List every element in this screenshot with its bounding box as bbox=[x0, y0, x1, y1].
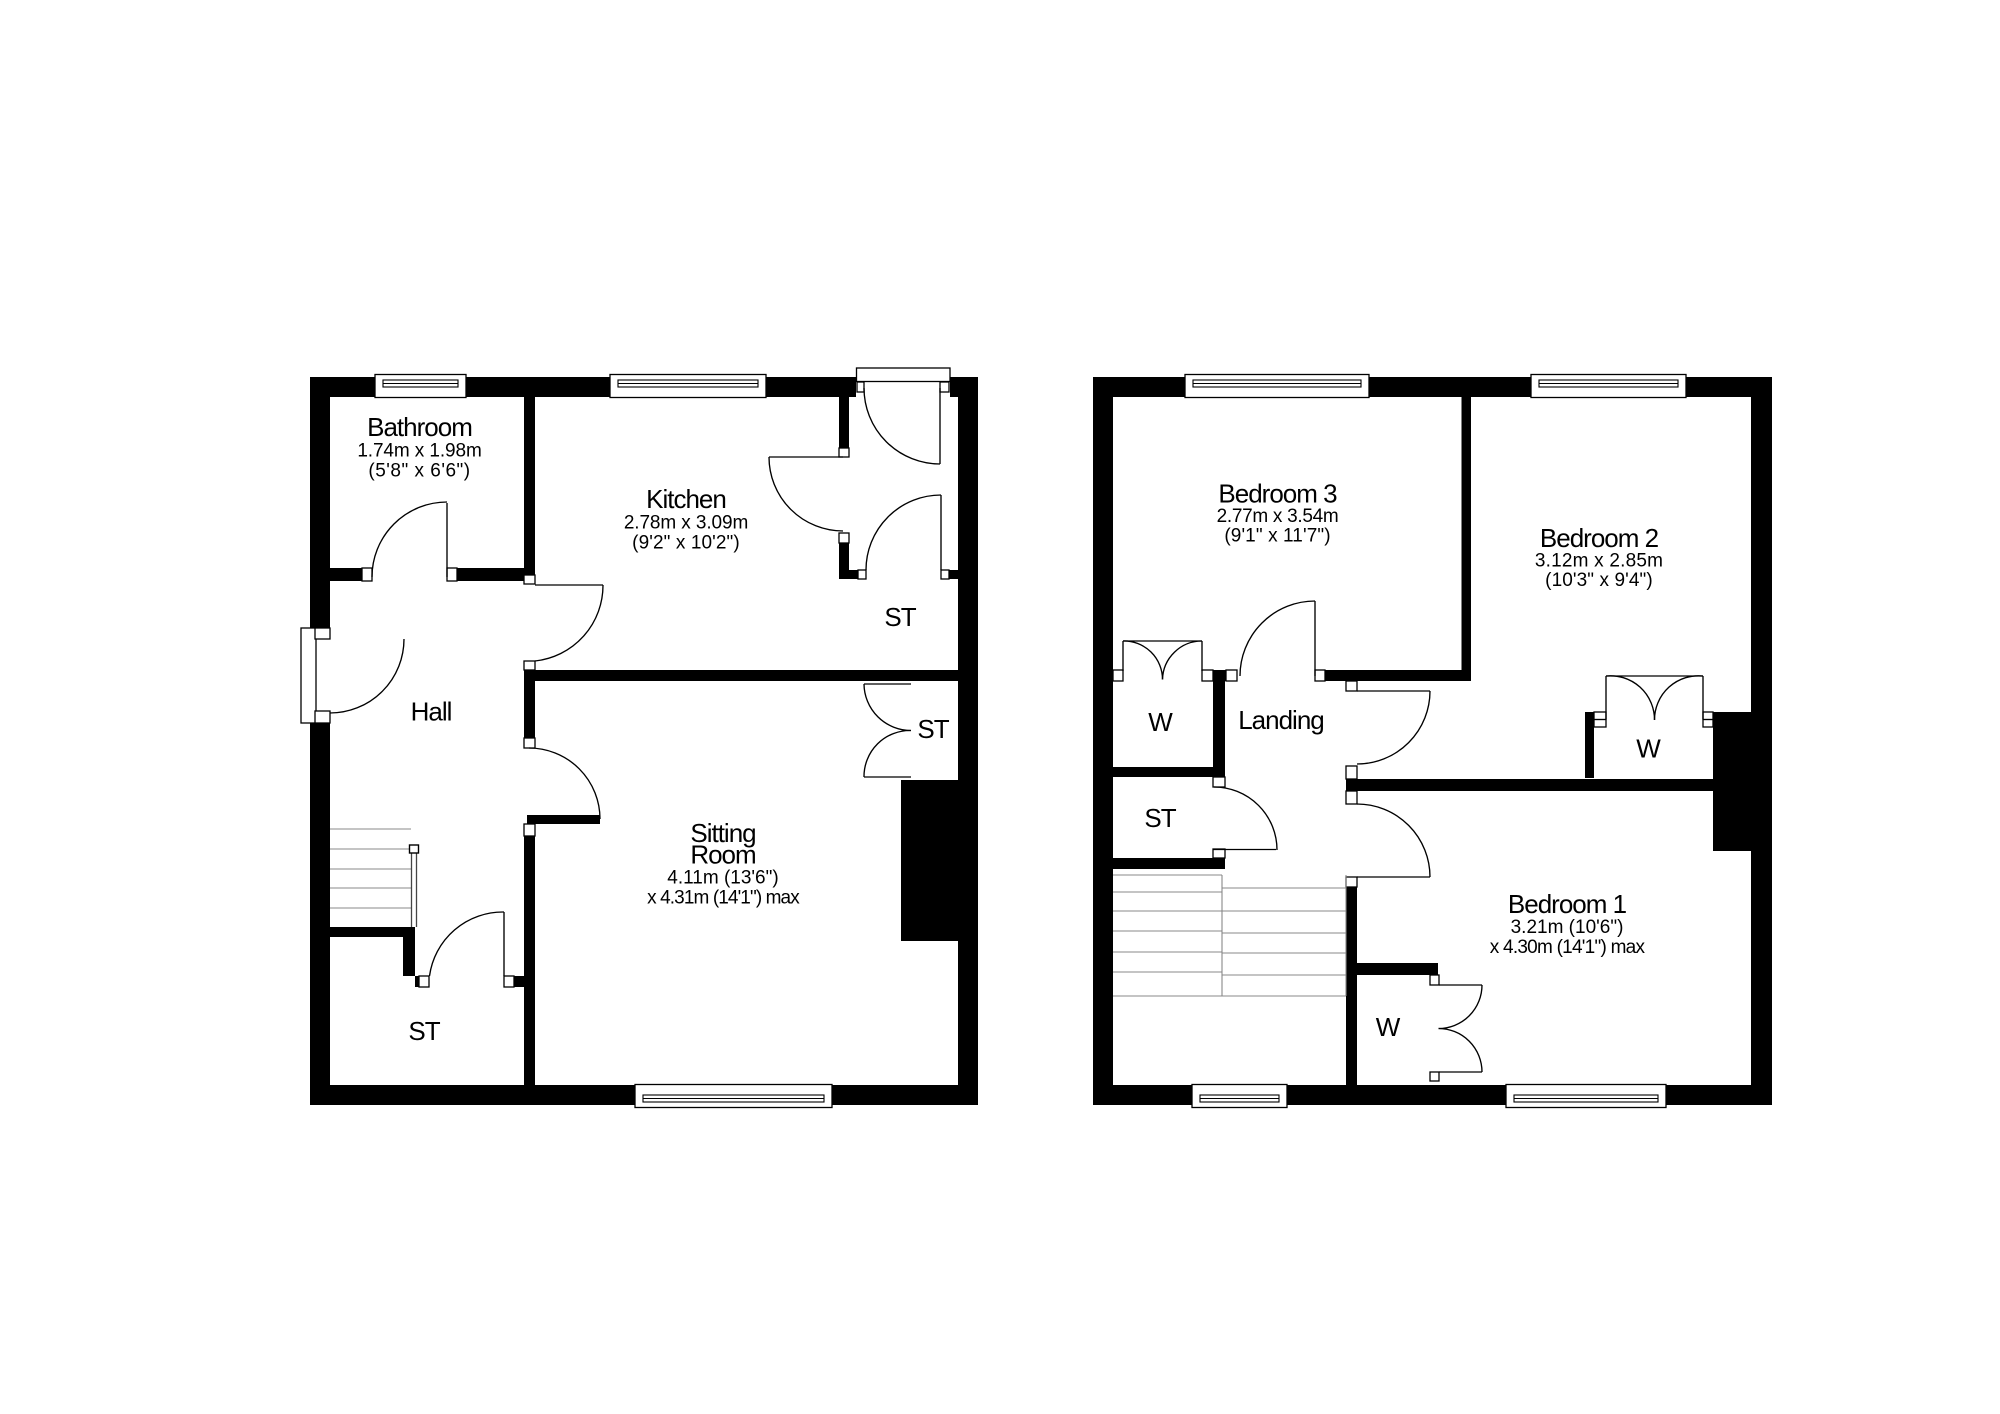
svg-text:ST: ST bbox=[917, 714, 949, 744]
svg-text:W: W bbox=[1148, 707, 1173, 737]
svg-text:Bedroom 1: Bedroom 1 bbox=[1508, 889, 1627, 919]
svg-text:Bedroom 3: Bedroom 3 bbox=[1218, 479, 1337, 509]
svg-text:(5'8" x 6'6"): (5'8" x 6'6") bbox=[368, 461, 470, 482]
svg-text:Hall: Hall bbox=[411, 697, 452, 727]
svg-text:ST: ST bbox=[408, 1016, 440, 1046]
svg-text:(10'3" x 9'4"): (10'3" x 9'4") bbox=[1545, 570, 1653, 591]
svg-text:Bathroom: Bathroom bbox=[367, 412, 472, 442]
svg-text:2.78m x 3.09m: 2.78m x 3.09m bbox=[624, 512, 748, 533]
svg-text:(9'1" x 11'7"): (9'1" x 11'7") bbox=[1224, 526, 1330, 547]
svg-text:x 4.30m (14'1") max: x 4.30m (14'1") max bbox=[1490, 937, 1646, 958]
svg-text:W: W bbox=[1376, 1012, 1401, 1042]
svg-text:3.12m x 2.85m: 3.12m x 2.85m bbox=[1535, 551, 1663, 572]
svg-text:ST: ST bbox=[884, 602, 916, 632]
svg-text:ST: ST bbox=[1144, 803, 1176, 833]
svg-text:x 4.31m (14'1") max: x 4.31m (14'1") max bbox=[647, 888, 800, 909]
svg-text:Kitchen: Kitchen bbox=[646, 484, 726, 514]
svg-text:1.74m x 1.98m: 1.74m x 1.98m bbox=[357, 440, 481, 461]
svg-text:4.11m (13'6"): 4.11m (13'6") bbox=[667, 868, 778, 889]
svg-text:Landing: Landing bbox=[1238, 705, 1324, 735]
svg-text:(9'2" x 10'2"): (9'2" x 10'2") bbox=[632, 533, 740, 554]
svg-text:2.77m x 3.54m: 2.77m x 3.54m bbox=[1217, 506, 1339, 527]
svg-text:W: W bbox=[1636, 734, 1661, 764]
svg-text:3.21m (10'6"): 3.21m (10'6") bbox=[1511, 917, 1624, 938]
svg-text:Bedroom 2: Bedroom 2 bbox=[1540, 523, 1659, 553]
svg-text:Room: Room bbox=[690, 840, 755, 870]
